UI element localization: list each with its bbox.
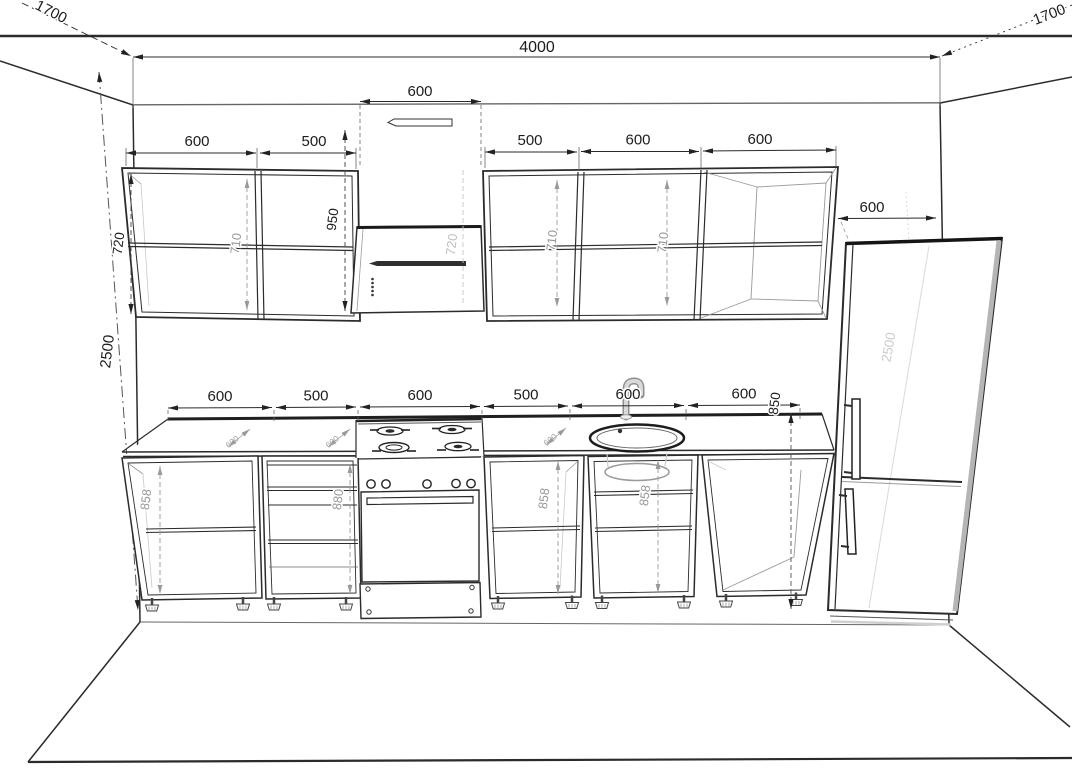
hood-body (351, 226, 484, 313)
cooker-hood[interactable] (351, 119, 484, 313)
room-width-dim: 4000 (519, 39, 555, 56)
base-cabinet-4[interactable] (702, 454, 834, 608)
upper-cab5-width-dim: 600 (747, 131, 772, 148)
ceiling-left-edge (0, 61, 133, 105)
wall-cab3-inner-height-dim: 710 (544, 229, 560, 251)
floor-left-edge (28, 622, 140, 762)
gas-stove[interactable] (356, 418, 484, 619)
fridge-dimensions: 600 (838, 192, 936, 241)
hood-vent-slot (369, 261, 466, 266)
sink-bowl-under (605, 464, 669, 481)
kitchen-elevation-drawing: 4000 1700 1700 2500 600 500 6 (0, 0, 1072, 771)
stove-width-dim: 600 (407, 387, 432, 404)
hood-height-dim: 720 (443, 233, 461, 256)
floor-right-edge (949, 625, 1070, 727)
base-cabinet-3[interactable]: 858 (484, 456, 584, 610)
base-cab1-inner-height-dim: 858 (138, 488, 154, 510)
stove-control-knobs[interactable] (367, 479, 475, 488)
oven-door-handle[interactable] (367, 497, 473, 505)
base-cab1-width-dim: 600 (207, 388, 232, 405)
base-cabinet-2-drawers[interactable]: 880 (262, 456, 361, 610)
ceiling-right-edge (940, 77, 1072, 103)
wall-cab1-inner-height-dim: 710 (228, 232, 244, 254)
back-wall-bottom-edge (140, 622, 949, 625)
hood-clearance-dim: 950 (324, 207, 342, 231)
hood-chimney-vent (388, 119, 452, 126)
upper-cab4-width-dim: 600 (625, 132, 650, 149)
counter-height-dim: 850 (766, 391, 784, 415)
wall-cab-height-dim: 720 (110, 231, 128, 255)
drawing-canvas[interactable]: 4000 1700 1700 2500 600 500 6 (0, 0, 1072, 771)
floor-front-edge (28, 758, 1072, 762)
base-cab2-inner-height-dim: 880 (330, 488, 346, 510)
upper-cab2-width-dim: 500 (301, 133, 326, 150)
sink-rim (590, 425, 684, 452)
fridge-upper-door-handle[interactable] (852, 399, 860, 479)
fridge-width-dim: 600 (859, 199, 884, 216)
base-cabinet-1[interactable]: 858 (122, 456, 262, 611)
sink-drain-hole (618, 429, 622, 433)
right-wall-depth-dim: 1700 (1031, 1, 1068, 29)
wall-cab4-inner-height-dim: 710 (655, 231, 671, 253)
stove-bottom-drawer[interactable] (360, 583, 481, 619)
upper-cab1-width-dim: 600 (184, 133, 209, 150)
wall-height-dim: 2500 (97, 334, 118, 369)
refrigerator[interactable]: 2500 (828, 238, 1002, 625)
upper-cab3-width-dim: 500 (517, 132, 542, 149)
sink-width-dim: 600 (615, 386, 640, 403)
base-cab2-width-dim: 500 (303, 388, 328, 405)
base-cab3-inner-height-dim: 858 (536, 487, 552, 509)
base-cab4-width-dim: 600 (731, 386, 756, 403)
base-cab3-width-dim: 500 (513, 387, 538, 404)
sink-cab-inner-height-dim: 858 (637, 484, 653, 506)
sink-cabinet[interactable]: 858 (588, 453, 698, 609)
hood-width-dim: 600 (407, 83, 432, 100)
